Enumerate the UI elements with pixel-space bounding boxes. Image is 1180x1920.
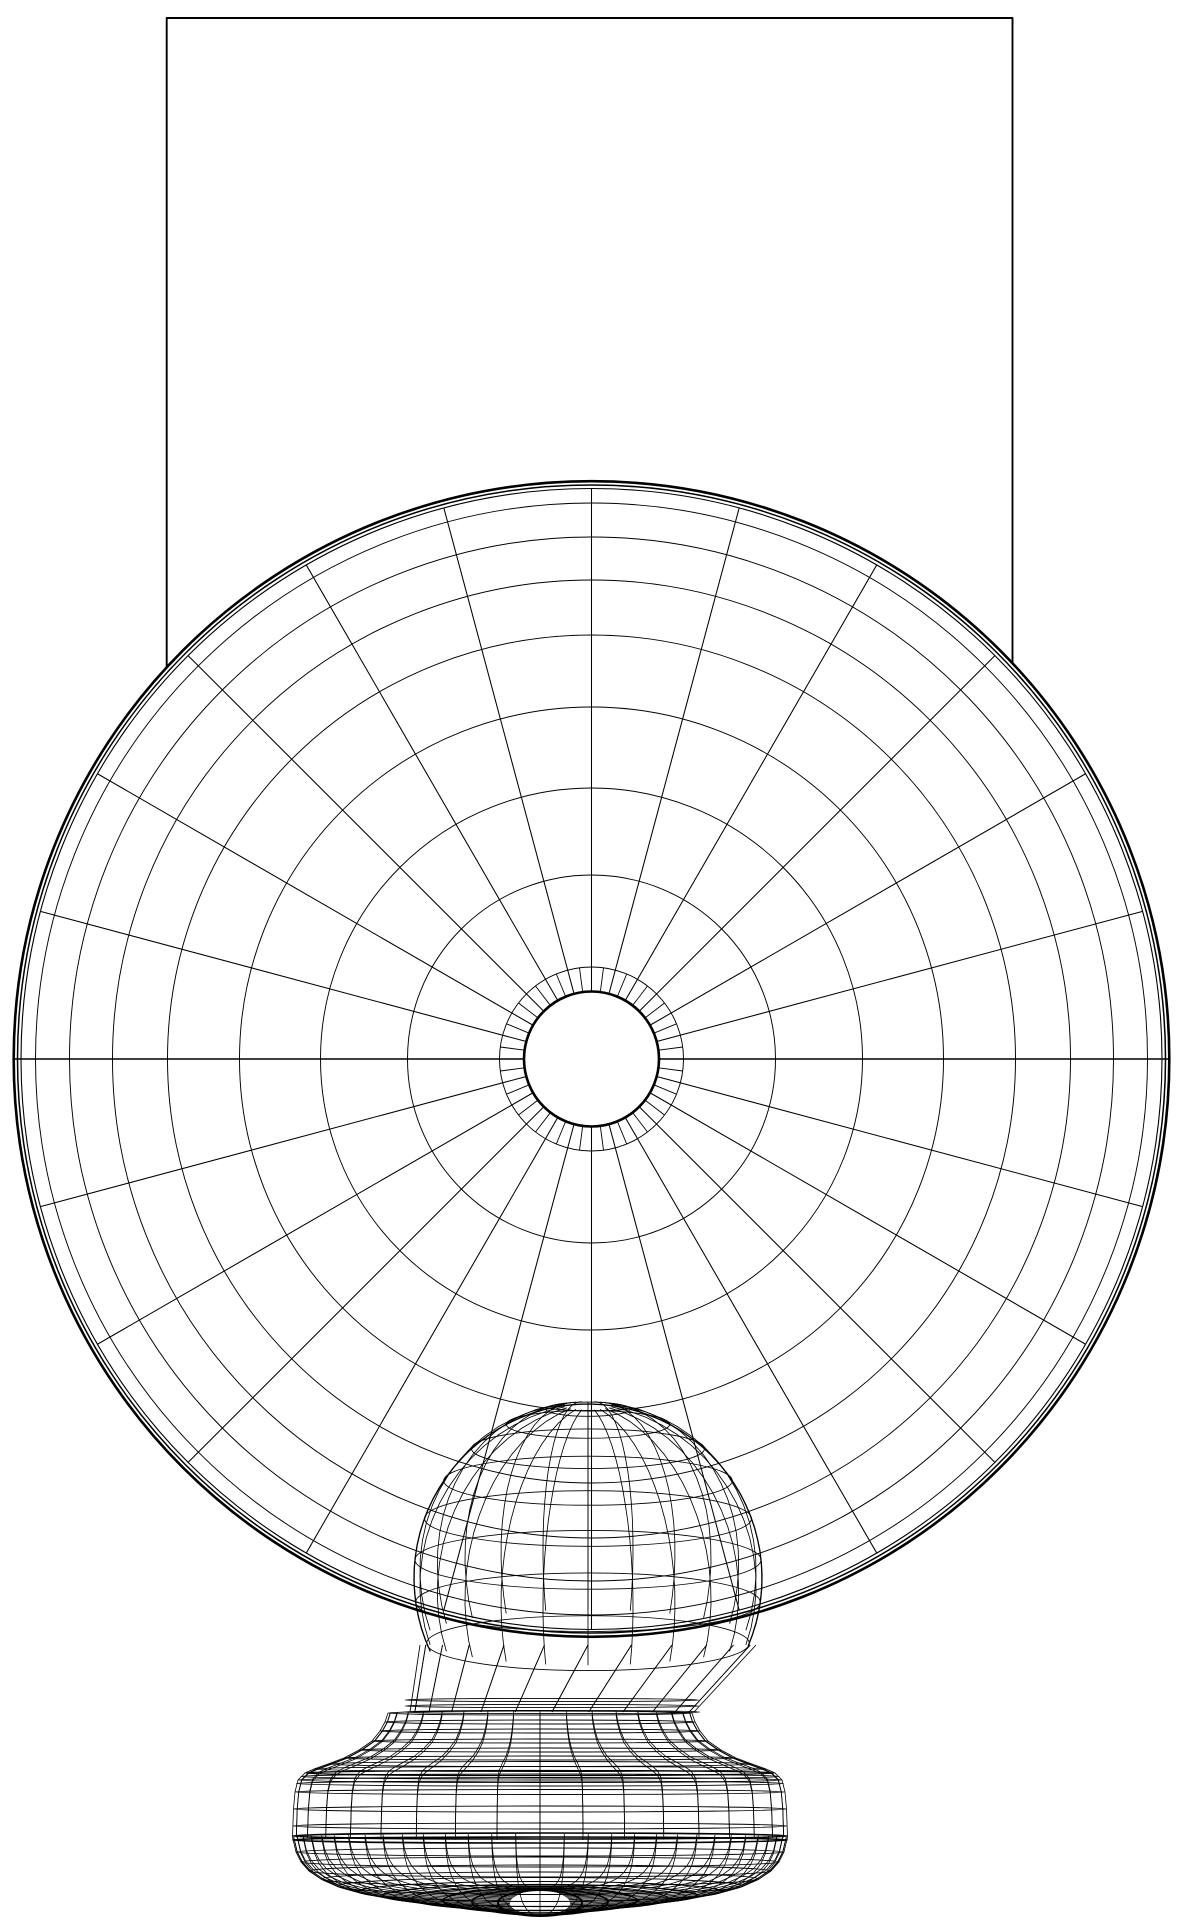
scene-svg	[0, 0, 1180, 1920]
neck-column	[404, 1645, 756, 1714]
wireframe-render	[0, 0, 1180, 1920]
pedestal-base	[293, 1711, 788, 1917]
sphere-hub	[524, 992, 659, 1127]
